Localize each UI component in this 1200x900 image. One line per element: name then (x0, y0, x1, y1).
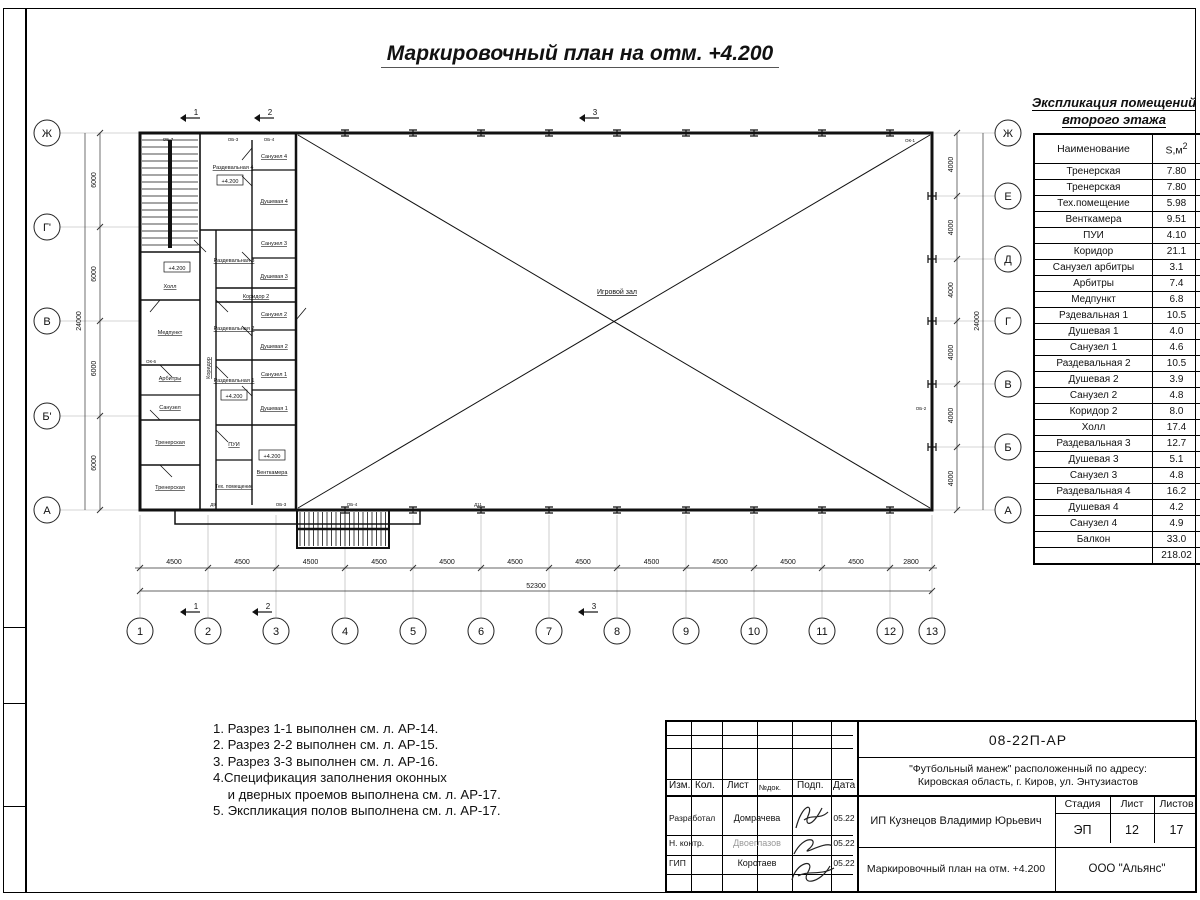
room-name: Балкон (1034, 532, 1153, 548)
svg-text:1: 1 (137, 626, 143, 638)
svg-text:8: 8 (614, 626, 620, 638)
svg-text:1: 1 (194, 108, 199, 117)
hall-label: Игровой зал (597, 288, 637, 296)
svg-text:2: 2 (268, 108, 273, 117)
room-area: 5.98 (1153, 196, 1200, 212)
room-name: Душевая 3 (1034, 452, 1153, 468)
room-area: 3.1 (1153, 260, 1200, 276)
svg-text:6: 6 (478, 626, 484, 638)
svg-text:13: 13 (926, 626, 938, 638)
table-row: Душевая 14.0 (1034, 324, 1200, 340)
explication-table: Наименование S,м2 Тренерская7.80Тренерск… (1033, 133, 1200, 565)
room-name: Тренерская (1034, 164, 1153, 180)
elevation-mark: +4.200 (226, 394, 243, 400)
room-area: 17.4 (1153, 420, 1200, 436)
col-data: Дата (833, 780, 855, 791)
table-row: Санузел 24.8 (1034, 388, 1200, 404)
svg-text:9: 9 (683, 626, 689, 638)
room-area: 8.0 (1153, 404, 1200, 420)
door-mark: ОБ-3 (276, 502, 287, 507)
svg-text:Ж: Ж (1003, 128, 1013, 140)
room-label: Душевая 1 (260, 406, 288, 412)
svg-text:Ж: Ж (42, 128, 52, 140)
svg-text:2: 2 (205, 626, 211, 638)
room-area: 3.9 (1153, 372, 1200, 388)
col-ndok: №док. (759, 783, 781, 792)
room-name: Санузел 2 (1034, 388, 1153, 404)
svg-text:Д: Д (1004, 254, 1012, 266)
room-name: Душевая 4 (1034, 500, 1153, 516)
room-label: Раздевальная 2 (214, 326, 255, 332)
svg-text:А: А (43, 505, 51, 517)
client-name: ИП Кузнецов Владимир Юрьевич (857, 795, 1055, 847)
sheets-value: 17 (1154, 813, 1199, 847)
room-name: Тех.помещение (1034, 196, 1153, 212)
svg-text:6000: 6000 (91, 172, 98, 188)
room-area: 5.1 (1153, 452, 1200, 468)
svg-text:6000: 6000 (91, 455, 98, 471)
svg-text:6000: 6000 (91, 266, 98, 282)
svg-text:11: 11 (816, 626, 827, 638)
room-label: Тренерская (155, 440, 185, 446)
table-row: Санузел 44.9 (1034, 516, 1200, 532)
note-line: 1. Разрез 1-1 выполнен см. л. АР-14. (213, 721, 501, 737)
col-podp: Подп. (797, 780, 824, 791)
window-mark: ОБ-2 (916, 406, 927, 411)
room-label: Арбитры (159, 376, 182, 382)
door-mark: ОБ-4 (347, 502, 358, 507)
room-area: 4.9 (1153, 516, 1200, 532)
room-area: 33.0 (1153, 532, 1200, 548)
note-line: 5. Экспликация полов выполнена см. л. АР… (213, 803, 501, 819)
window-mark: ОК-6 (146, 359, 157, 364)
svg-text:4500: 4500 (848, 559, 864, 566)
room-area: 10.5 (1153, 308, 1200, 324)
room-area: 16.2 (1153, 484, 1200, 500)
svg-text:24000: 24000 (974, 311, 981, 331)
table-row: Тех.помещение5.98 (1034, 196, 1200, 212)
room-area: 7.80 (1153, 180, 1200, 196)
svg-text:5: 5 (410, 626, 416, 638)
table-row: Раздевальная 416.2 (1034, 484, 1200, 500)
column-header-area: S,м2 (1153, 134, 1200, 164)
explication-title-line2: второго этажа (1062, 112, 1166, 128)
svg-text:4500: 4500 (507, 559, 523, 566)
company-name: ООО "Альянс" (1055, 847, 1199, 891)
room-label: Раздевальная 3 (214, 258, 255, 264)
explication-title-line1: Экспликация помещений (1032, 95, 1196, 111)
table-row: Арбитры7.4 (1034, 276, 1200, 292)
room-area: 4.10 (1153, 228, 1200, 244)
floor-plan: 4500450045004500450045004500450045004500… (0, 0, 1200, 660)
svg-text:Б: Б (1004, 442, 1011, 454)
room-name: Венткамера (1034, 212, 1153, 228)
room-label: Душевая 4 (260, 199, 288, 205)
name-developed: Домрачева (722, 813, 792, 823)
notes-list: 1. Разрез 1-1 выполнен см. л. АР-14.2. Р… (213, 721, 501, 819)
frame-divider (3, 806, 26, 807)
total-area: 218.02 (1153, 548, 1200, 565)
room-label: Санузел (159, 405, 180, 411)
svg-text:12: 12 (884, 626, 896, 638)
name-gip: Коротаев (722, 858, 792, 868)
room-label: Раздевальная 4 (213, 165, 254, 171)
room-label: Холл (164, 284, 177, 290)
table-row: Душевая 35.1 (1034, 452, 1200, 468)
svg-text:4500: 4500 (439, 559, 455, 566)
window-mark: ОБ-7 (163, 137, 174, 142)
svg-text:4000: 4000 (948, 220, 955, 236)
role-gip: ГИП (669, 858, 686, 868)
svg-text:4000: 4000 (948, 282, 955, 298)
room-label: Венткамера (257, 470, 289, 476)
table-row: Санузел 14.6 (1034, 340, 1200, 356)
sheet-label: Лист (1110, 795, 1154, 813)
door-mark: Д11 (474, 502, 482, 507)
project-address-line1: "Футбольный манеж" расположенный по адре… (909, 763, 1147, 776)
table-row: Тренерская7.80 (1034, 164, 1200, 180)
room-labels: Раздевальная 4 Санузел 4 Душевая 4 Разде… (155, 154, 288, 491)
svg-text:В: В (1004, 379, 1011, 391)
room-area: 4.8 (1153, 468, 1200, 484)
room-label: Санузел 4 (261, 154, 287, 160)
table-row: Холл17.4 (1034, 420, 1200, 436)
room-label: Душевая 2 (260, 344, 288, 350)
room-area: 4.6 (1153, 340, 1200, 356)
room-label: ПУИ (228, 442, 239, 448)
svg-text:4000: 4000 (948, 408, 955, 424)
project-address-line2: Кировская область, г. Киров, ул. Энтузиа… (918, 776, 1138, 789)
room-label: Коридор 2 (243, 294, 269, 300)
room-name: Душевая 2 (1034, 372, 1153, 388)
table-row: Венткамера9.51 (1034, 212, 1200, 228)
room-area: 4.8 (1153, 388, 1200, 404)
room-area: 12.7 (1153, 436, 1200, 452)
svg-text:Е: Е (1004, 191, 1011, 203)
svg-text:2: 2 (266, 602, 271, 611)
stage-label: Стадия (1055, 795, 1110, 813)
room-name: Душевая 1 (1034, 324, 1153, 340)
room-area: 9.51 (1153, 212, 1200, 228)
svg-text:4000: 4000 (948, 157, 955, 173)
room-name: Медпункт (1034, 292, 1153, 308)
table-row: Душевая 44.2 (1034, 500, 1200, 516)
table-row: Раздевальная 210.5 (1034, 356, 1200, 372)
building-walls (140, 133, 932, 548)
window-mark: ОК-1 (905, 138, 916, 143)
svg-text:4500: 4500 (712, 559, 728, 566)
table-row: Коридор 28.0 (1034, 404, 1200, 420)
note-line: 2. Разрез 2-2 выполнен см. л. АР-15. (213, 737, 501, 753)
frame-divider (3, 703, 26, 704)
table-row: Медпункт6.8 (1034, 292, 1200, 308)
signature-icon (792, 798, 834, 834)
name-ncontr: Двоеглазов (722, 838, 792, 848)
elevation-mark: +4.200 (222, 179, 239, 185)
room-label: Раздевальная 1 (214, 378, 255, 384)
svg-text:3: 3 (592, 602, 597, 611)
svg-text:1: 1 (194, 602, 199, 611)
door-mark: Д9 (210, 502, 216, 507)
svg-text:4000: 4000 (948, 471, 955, 487)
elevation-mark: +4.200 (169, 266, 186, 272)
table-row: Санузел арбитры3.1 (1034, 260, 1200, 276)
window-mark: ОБ-4 (264, 137, 275, 142)
document-number: 08-22П-АР (857, 722, 1199, 757)
date-developed: 05.22 (831, 813, 857, 823)
room-name: Санузел 1 (1034, 340, 1153, 356)
room-name: Арбитры (1034, 276, 1153, 292)
note-line: 4.Спецификация заполнения оконных (213, 770, 501, 786)
svg-text:6000: 6000 (91, 361, 98, 377)
col-kol: Кол. (695, 780, 715, 791)
room-label: Медпункт (158, 330, 183, 336)
explication-title: Экспликация помещений второго этажа (1028, 94, 1200, 128)
svg-text:В: В (43, 316, 50, 328)
sheet-value: 12 (1110, 813, 1154, 847)
room-name: Коридор 2 (1034, 404, 1153, 420)
svg-text:4000: 4000 (948, 345, 955, 361)
total-row: 218.02 (1034, 548, 1200, 565)
room-name: ПУИ (1034, 228, 1153, 244)
window-mark: ОБ-3 (228, 137, 239, 142)
svg-text:24000: 24000 (76, 311, 83, 331)
svg-text:7: 7 (546, 626, 552, 638)
room-name: Коридор (1034, 244, 1153, 260)
svg-text:4500: 4500 (644, 559, 660, 566)
room-name: Раздевальная 3 (1034, 436, 1153, 452)
table-row: Тренерская7.80 (1034, 180, 1200, 196)
svg-text:Г': Г' (43, 222, 51, 234)
room-label: Тренерская (155, 485, 185, 491)
room-name: Раздевальная 2 (1034, 356, 1153, 372)
svg-text:А: А (1004, 505, 1012, 517)
elevation-mark: +4.200 (264, 454, 281, 460)
room-label: Душевая 3 (260, 274, 288, 280)
plan-axes-and-dimensions: 4500450045004500450045004500450045004500… (34, 108, 1021, 644)
svg-text:4: 4 (342, 626, 348, 638)
room-label: Санузел 3 (261, 241, 287, 247)
note-line: 3. Разрез 3-3 выполнен см. л. АР-16. (213, 754, 501, 770)
svg-text:4500: 4500 (371, 559, 387, 566)
title-block: Изм. Кол. Лист №док. Подп. Дата Разработ… (665, 720, 1197, 893)
col-izm: Изм. (669, 780, 690, 791)
table-row: Раздевальная 312.7 (1034, 436, 1200, 452)
svg-text:52300: 52300 (526, 583, 546, 590)
room-area: 6.8 (1153, 292, 1200, 308)
room-area: 7.80 (1153, 164, 1200, 180)
stage-value: ЭП (1055, 813, 1110, 847)
room-area: 10.5 (1153, 356, 1200, 372)
svg-text:4500: 4500 (166, 559, 182, 566)
room-name: Раздевальная 4 (1034, 484, 1153, 500)
room-area: 4.0 (1153, 324, 1200, 340)
room-label: Санузел 1 (261, 372, 287, 378)
svg-text:10: 10 (748, 626, 760, 638)
signature-icon (790, 832, 836, 890)
table-row: Рздевальная 110.5 (1034, 308, 1200, 324)
svg-text:4500: 4500 (575, 559, 591, 566)
table-row: Балкон33.0 (1034, 532, 1200, 548)
room-area: 7.4 (1153, 276, 1200, 292)
room-name: Рздевальная 1 (1034, 308, 1153, 324)
room-name: Санузел 3 (1034, 468, 1153, 484)
svg-text:4500: 4500 (303, 559, 319, 566)
svg-text:4500: 4500 (780, 559, 796, 566)
svg-text:3: 3 (273, 626, 279, 638)
total-empty (1034, 548, 1153, 565)
room-label: Санузел 2 (261, 312, 287, 318)
note-line: и дверных проемов выполнена см. л. АР-17… (213, 787, 501, 803)
room-area: 21.1 (1153, 244, 1200, 260)
room-name: Санузел 4 (1034, 516, 1153, 532)
role-ncontr: Н. контр. (669, 838, 704, 848)
svg-text:Б': Б' (42, 411, 51, 423)
room-label: Коридор (206, 357, 212, 379)
svg-text:4500: 4500 (234, 559, 250, 566)
drawing-sheet: { "title": "Маркировочный план на отм. +… (0, 0, 1200, 900)
svg-text:Г: Г (1005, 316, 1011, 328)
opening-marks: ОБ-7 ОБ-3 ОБ-4 ОК-1 ОБ-2 ОК-6 Д9 ОБ-3 ОБ… (146, 137, 927, 507)
table-row: Санузел 34.8 (1034, 468, 1200, 484)
room-area: 4.2 (1153, 500, 1200, 516)
svg-text:3: 3 (593, 108, 598, 117)
room-name: Холл (1034, 420, 1153, 436)
room-name: Тренерская (1034, 180, 1153, 196)
drawing-name: Маркировочный план на отм. +4.200 (857, 847, 1055, 891)
svg-text:2800: 2800 (903, 559, 919, 566)
table-row: ПУИ4.10 (1034, 228, 1200, 244)
role-developed: Разработал (669, 813, 715, 823)
col-list: Лист (727, 780, 749, 791)
sheets-label: Листов (1154, 795, 1199, 813)
room-label: Тех. помещение (215, 484, 253, 490)
room-name: Санузел арбитры (1034, 260, 1153, 276)
table-row: Коридор21.1 (1034, 244, 1200, 260)
table-row: Душевая 23.9 (1034, 372, 1200, 388)
column-header-name: Наименование (1034, 134, 1153, 164)
